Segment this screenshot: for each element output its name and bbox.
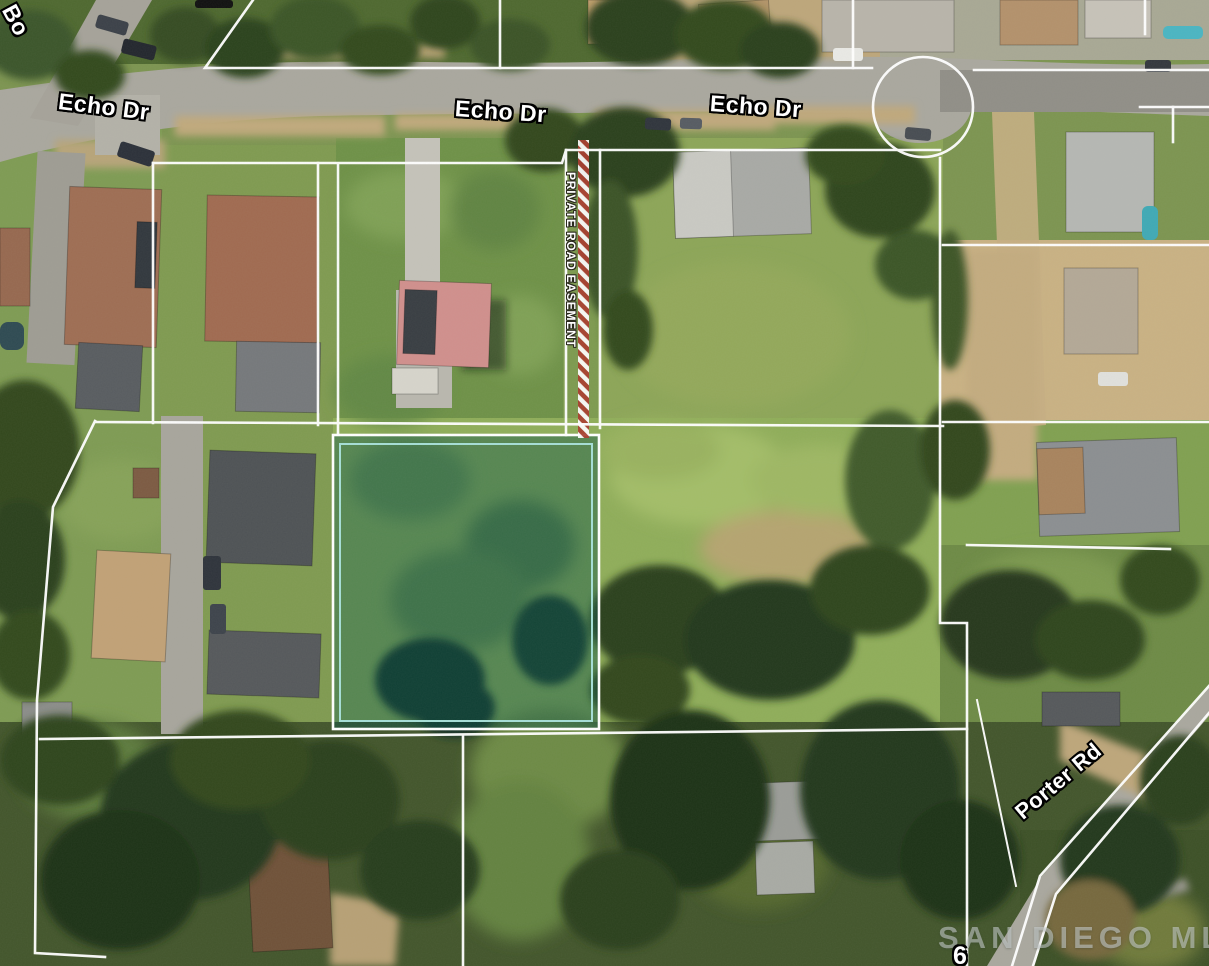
watermark: SAN DIEGO MLS — [938, 920, 1209, 956]
private-road-easement-label: PRIVATE ROAD EASEMENT — [564, 172, 578, 442]
cut-off-house-number: 6 — [953, 942, 967, 966]
aerial-parcel-map[interactable]: Bo Echo Dr Echo Dr Echo Dr Porter Rd PRI… — [0, 0, 1209, 966]
